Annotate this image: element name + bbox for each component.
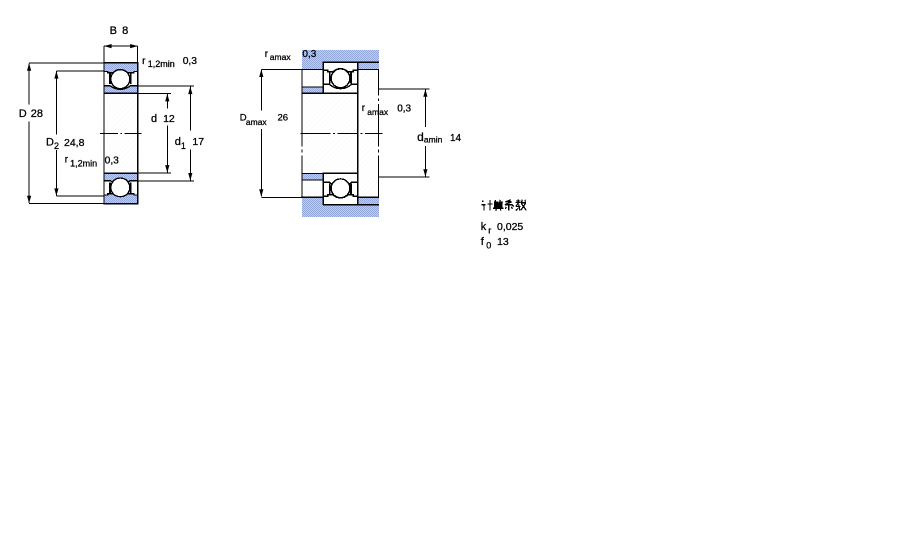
svg-text:d12: d12 (151, 113, 175, 125)
svg-text:D28: D28 (19, 108, 43, 120)
